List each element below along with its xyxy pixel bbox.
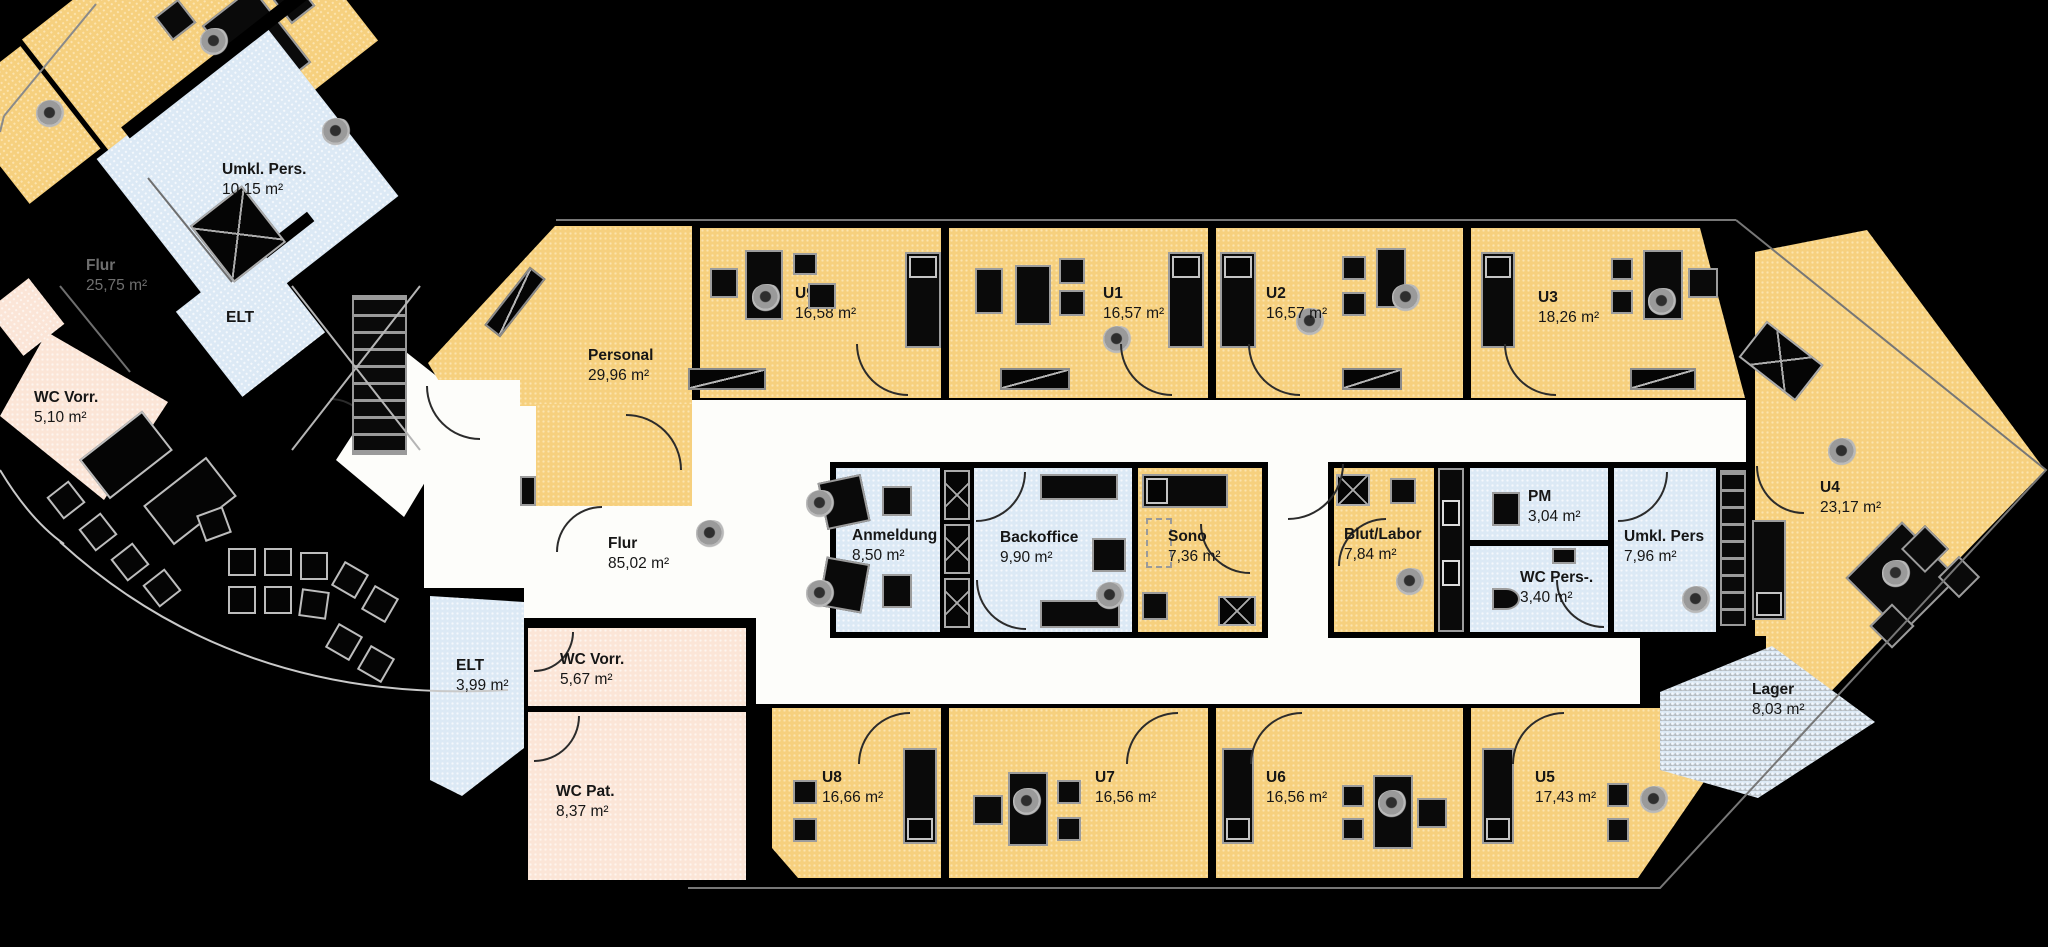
label-backoffice: Backoffice9,90 m²: [1000, 528, 1078, 569]
waiting-chair: [264, 548, 292, 576]
label-elt-unten: ELT3,99 m²: [456, 656, 509, 697]
chair-icon: [1396, 568, 1428, 596]
furniture-cabinet: [1059, 290, 1085, 316]
equipment-icon: [200, 28, 232, 56]
chair-icon: [1640, 786, 1672, 814]
chair-icon: [806, 580, 838, 608]
chair-icon: [1096, 582, 1128, 610]
waiting-chair: [228, 586, 256, 614]
furniture-cabinet: [710, 268, 738, 298]
furniture-cabinet: [1342, 818, 1364, 840]
label-wc-pers: WC Pers-.3,40 m²: [1520, 568, 1593, 609]
couch-pillow: [1226, 818, 1250, 840]
equipment-icon: [36, 100, 68, 128]
label-elt-links: ELT: [226, 308, 254, 328]
furniture-cabinet: [1611, 290, 1633, 314]
equipment-icon: [696, 520, 728, 548]
furniture-shelf: [1040, 474, 1118, 500]
label-anmeldung: Anmeldung8,50 m²: [852, 526, 937, 567]
cistern-icon: [1552, 548, 1576, 564]
label-u6: U616,56 m²: [1266, 768, 1327, 809]
furniture-cabinet: [1607, 818, 1629, 842]
furniture-cabinet: [882, 486, 912, 516]
label-u5: U517,43 m²: [1535, 768, 1596, 809]
furniture-cabinet: [808, 283, 836, 309]
furniture-cabinet: [793, 780, 817, 804]
label-flur-links: Flur25,75 m²: [86, 256, 147, 297]
pm-cabinet: [1492, 492, 1520, 526]
chair-icon: [806, 490, 838, 518]
furniture-cabinet: [1342, 292, 1366, 316]
chair-icon: [1648, 288, 1680, 316]
waiting-chair: [78, 512, 117, 551]
furniture-cabinet: [882, 574, 912, 608]
furniture-cabinet: [1688, 268, 1718, 298]
label-umkl-pers-links: Umkl. Pers.10,15 m²: [222, 160, 306, 201]
chair-icon: [322, 118, 354, 146]
couch-pillow: [907, 818, 933, 840]
waiting-chair: [298, 588, 330, 620]
label-pm: PM3,04 m²: [1528, 487, 1581, 528]
chair-icon: [1882, 560, 1914, 588]
toilet-icon: [1492, 588, 1520, 610]
furniture-cabinet: [975, 268, 1003, 314]
waiting-chair: [46, 480, 85, 519]
couch-pillow: [1224, 256, 1252, 278]
furniture-cabinet: [1417, 798, 1447, 828]
furniture-cabinet: [1611, 258, 1633, 280]
furniture-cabinet: [1059, 258, 1085, 284]
floor-plan: Personal29,96 m² U916,58 m² U116,57 m² U…: [0, 0, 2048, 947]
furniture-cabinet: [1142, 592, 1168, 620]
waiting-chair: [361, 585, 399, 623]
shelf-x-icon: [944, 470, 970, 520]
bed-pillow: [1146, 478, 1168, 504]
label-umkl-pers-mitte: Umkl. Pers7,96 m²: [1624, 527, 1704, 568]
chair-icon: [752, 284, 784, 312]
waiting-chair: [264, 586, 292, 614]
furniture-cabinet: [1342, 785, 1364, 807]
label-flur-main: Flur85,02 m²: [608, 534, 669, 575]
label-u3: U318,26 m²: [1538, 288, 1599, 329]
furniture-cabinet: [1342, 256, 1366, 280]
furniture-locker: [1442, 500, 1460, 526]
furniture-cabinet: [1607, 783, 1629, 807]
furniture-wardrobe: [1438, 468, 1464, 632]
window-sill: [1342, 368, 1402, 390]
label-u8: U816,66 m²: [822, 768, 883, 809]
chair-icon: [1828, 438, 1860, 466]
furniture-locker: [1442, 560, 1460, 586]
waiting-chair: [228, 548, 256, 576]
couch-pillow: [909, 256, 937, 278]
label-wc-pat: WC Pat.8,37 m²: [556, 782, 615, 823]
couch-pillow: [1172, 256, 1200, 278]
ladder-icon: [1720, 470, 1746, 626]
waiting-chair: [357, 645, 395, 683]
label-u4: U423,17 m²: [1820, 478, 1881, 519]
furniture-cabinet: [520, 476, 536, 506]
label-u1: U116,57 m²: [1103, 284, 1164, 325]
chair-icon: [1013, 788, 1045, 816]
couch-pillow: [1486, 818, 1510, 840]
furniture-cabinet: [154, 0, 196, 41]
waiting-chair: [110, 542, 149, 581]
furniture-desk: [1092, 538, 1126, 572]
label-personal: Personal29,96 m²: [588, 346, 653, 387]
waiting-chair: [300, 552, 328, 580]
label-blut-labor: Blut/Labor7,84 m²: [1344, 525, 1422, 566]
label-lager: Lager8,03 m²: [1752, 680, 1805, 721]
waiting-chair: [325, 623, 363, 661]
label-wc-vorr-unten: WC Vorr.5,67 m²: [560, 650, 624, 691]
chair-icon: [1378, 790, 1410, 818]
furniture-cabinet: [1390, 478, 1416, 504]
window-sill: [1000, 368, 1070, 390]
furniture-cabinet: [793, 818, 817, 842]
window-sill: [688, 368, 766, 390]
shelf-x-icon: [944, 524, 970, 574]
furniture-cabinet: [1057, 817, 1081, 841]
couch-pillow: [1485, 256, 1511, 278]
window-sill: [1630, 368, 1696, 390]
chair-icon: [1682, 586, 1714, 614]
label-sono: Sono7,36 m²: [1168, 527, 1221, 568]
label-u2: U216,57 m²: [1266, 284, 1327, 325]
sink-x-icon: [1218, 596, 1256, 626]
stairs-icon: [352, 295, 407, 455]
furniture-desk: [1015, 265, 1051, 325]
shelf-x-icon: [944, 578, 970, 628]
furniture-cabinet: [793, 253, 817, 275]
chair-icon: [1392, 284, 1424, 312]
couch-pillow: [1756, 592, 1782, 616]
furniture-cabinet: [1057, 780, 1081, 804]
waiting-chair: [331, 561, 369, 599]
label-wc-vorr-links: WC Vorr.5,10 m²: [34, 388, 98, 429]
waiting-chair: [142, 568, 181, 607]
furniture-cabinet: [973, 795, 1003, 825]
label-u7: U716,56 m²: [1095, 768, 1156, 809]
